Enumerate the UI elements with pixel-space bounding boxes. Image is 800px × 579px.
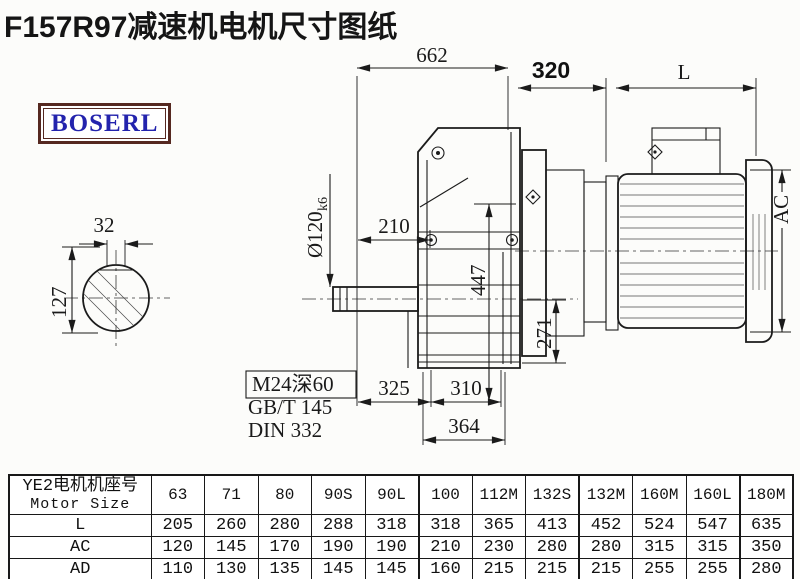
- motor-side-view: [522, 128, 772, 356]
- table-cell: 452: [579, 515, 633, 537]
- svg-text:127: 127: [47, 287, 71, 319]
- dim-L: L: [678, 60, 691, 84]
- table-cell: 547: [686, 515, 740, 537]
- table-cell: 318: [365, 515, 419, 537]
- table-cell: 145: [205, 537, 259, 559]
- table-cell: 524: [633, 515, 687, 537]
- dim-447: 447: [466, 265, 490, 297]
- table-cell: 215: [472, 559, 526, 579]
- table-cell: 255: [633, 559, 687, 579]
- dim-271: 271: [532, 318, 556, 350]
- svg-text:k6: k6: [316, 197, 331, 211]
- table-cell: 145: [365, 559, 419, 579]
- table-cell: 260: [205, 515, 259, 537]
- table-cell: 288: [312, 515, 366, 537]
- table-cell: 635: [740, 515, 794, 537]
- dim-320: 320: [532, 57, 570, 83]
- motor-size-table: YE2电机机座号Motor Size63718090S90L100112M132…: [8, 474, 794, 579]
- column-header-132S: 132S: [526, 475, 580, 515]
- table-cell: 145: [312, 559, 366, 579]
- column-header-180M: 180M: [740, 475, 794, 515]
- table-cell: 280: [258, 515, 312, 537]
- column-header-160M: 160M: [633, 475, 687, 515]
- dim-325: 325: [378, 376, 410, 400]
- row-label: AC: [9, 537, 151, 559]
- column-header-132M: 132M: [579, 475, 633, 515]
- dim-shaft-diameter: Ø120 k6: [303, 197, 331, 258]
- svg-text:AC: AC: [769, 195, 793, 224]
- table-cell: 280: [526, 537, 580, 559]
- table-cell: 350: [740, 537, 794, 559]
- table-cell: 315: [633, 537, 687, 559]
- table-cell: 280: [740, 559, 794, 579]
- table-cell: 280: [579, 537, 633, 559]
- dimension-drawing: 662 320 L 210 Ø120 k6 447 271 325 310 36…: [0, 0, 800, 470]
- dim-210: 210: [378, 214, 410, 238]
- row-label: L: [9, 515, 151, 537]
- shaft-end-view: [60, 234, 160, 406]
- svg-text:447: 447: [466, 265, 490, 297]
- table-cell: 205: [151, 515, 205, 537]
- table-cell: 110: [151, 559, 205, 579]
- column-header-71: 71: [205, 475, 259, 515]
- table-cell: 190: [312, 537, 366, 559]
- column-header-80: 80: [258, 475, 312, 515]
- row-label: AD: [9, 559, 151, 579]
- terminal-box: [652, 128, 720, 174]
- note-thread: M24深60: [252, 372, 334, 396]
- table-cell: 413: [526, 515, 580, 537]
- centerlines: [64, 250, 778, 346]
- motor-size-header-cell: YE2电机机座号Motor Size: [9, 475, 151, 515]
- dim-127: 127: [47, 287, 71, 319]
- column-header-112M: 112M: [472, 475, 526, 515]
- table-cell: 315: [686, 537, 740, 559]
- gearbox-front-view: [333, 128, 520, 368]
- column-header-90S: 90S: [312, 475, 366, 515]
- table-cell: 170: [258, 537, 312, 559]
- table-row-L: L205260280288318318365413452524547635: [9, 515, 793, 537]
- column-header-160L: 160L: [686, 475, 740, 515]
- svg-text:Ø120: Ø120: [303, 211, 327, 258]
- column-header-63: 63: [151, 475, 205, 515]
- table-cell: 135: [258, 559, 312, 579]
- table-cell: 210: [419, 537, 473, 559]
- header-en: Motor Size: [10, 496, 151, 513]
- table-row-AC: AC120145170190190210230280280315315350: [9, 537, 793, 559]
- note-std1: GB/T 145: [248, 395, 332, 419]
- dim-662: 662: [416, 43, 448, 67]
- column-header-90L: 90L: [365, 475, 419, 515]
- header-cn: YE2电机机座号: [10, 477, 151, 496]
- table-cell: 130: [205, 559, 259, 579]
- note-std2: DIN 332: [248, 418, 322, 442]
- dim-364: 364: [448, 414, 480, 438]
- table-cell: 215: [579, 559, 633, 579]
- dim-310: 310: [450, 376, 482, 400]
- column-header-100: 100: [419, 475, 473, 515]
- table-cell: 365: [472, 515, 526, 537]
- table-cell: 255: [686, 559, 740, 579]
- thread-note: M24深60 GB/T 145 DIN 332: [246, 371, 356, 442]
- page: F157R97减速机电机尺寸图纸 BOSERL: [0, 0, 800, 579]
- table-cell: 318: [419, 515, 473, 537]
- dim-32: 32: [94, 213, 115, 237]
- table-cell: 190: [365, 537, 419, 559]
- table-cell: 215: [526, 559, 580, 579]
- dim-AC: AC: [769, 195, 793, 224]
- table-cell: 120: [151, 537, 205, 559]
- svg-text:271: 271: [532, 318, 556, 350]
- table-cell: 230: [472, 537, 526, 559]
- table-row-AD: AD110130135145145160215215215255255280: [9, 559, 793, 579]
- table-cell: 160: [419, 559, 473, 579]
